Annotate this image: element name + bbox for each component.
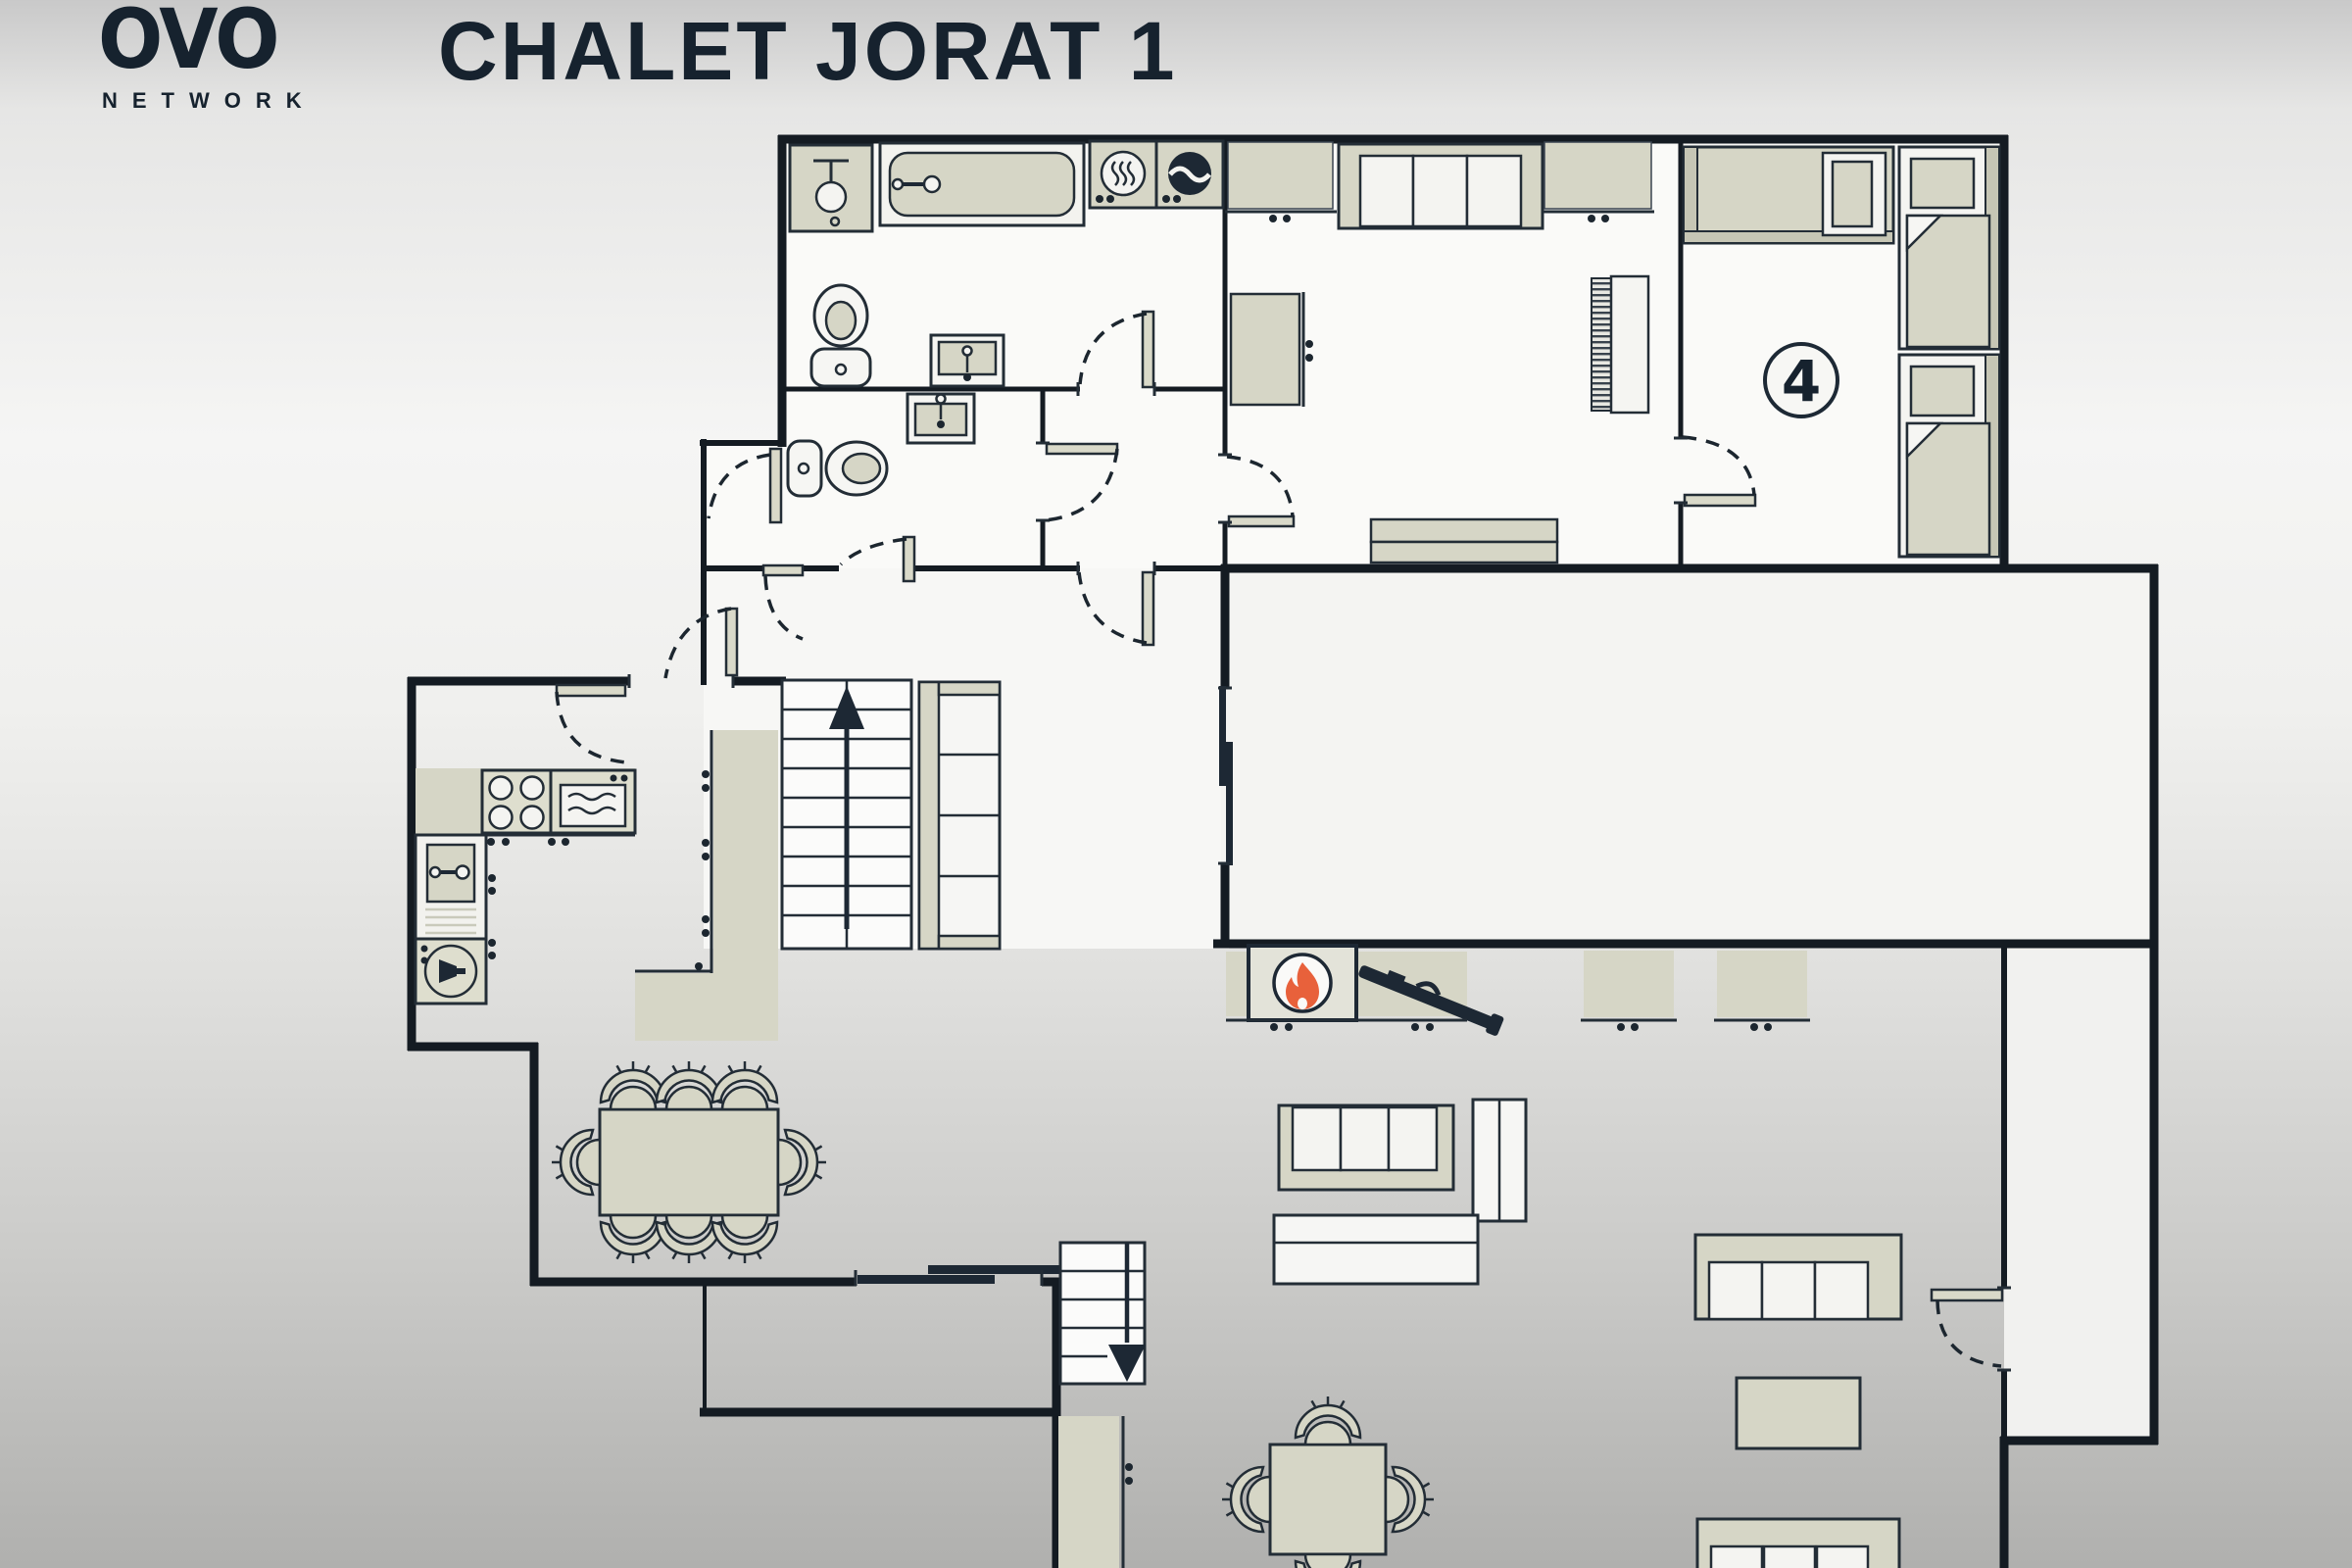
fireplace <box>1249 946 1356 1020</box>
dining-table <box>600 1109 778 1215</box>
bathroom-door-leaf <box>1143 312 1153 387</box>
sofa <box>1695 1235 1901 1319</box>
dining-area <box>552 1061 826 1263</box>
bedroom-door-leaf <box>1229 516 1294 526</box>
capacity-number: 4 <box>1782 348 1821 415</box>
hall-top-door-leaf <box>763 565 803 575</box>
coffee-table <box>1737 1378 1860 1448</box>
entry-landing-floor <box>2004 944 2154 1441</box>
dining-chair <box>712 1061 777 1109</box>
oven <box>551 770 635 833</box>
sink <box>931 335 1004 386</box>
wc-door-leaf <box>904 537 914 581</box>
breakfast-table <box>1222 1396 1434 1568</box>
living-door-leaf <box>1932 1290 2002 1300</box>
sideboard <box>1584 951 1674 1017</box>
radiator <box>1592 276 1648 413</box>
stair-hall <box>782 680 1000 949</box>
floorplan-drawing: 4 <box>0 0 2352 1568</box>
toilet <box>788 441 887 496</box>
bathtub-tap-icon <box>893 179 903 189</box>
sofa <box>1339 144 1543 228</box>
chair <box>1386 1467 1434 1532</box>
wc-corridor-door-leaf <box>1047 444 1117 454</box>
dining-chair <box>778 1130 826 1195</box>
hall-door-leaf <box>726 609 737 675</box>
bed-double <box>1684 147 1893 243</box>
open-void-floor <box>1221 564 2158 947</box>
chair <box>1222 1467 1270 1532</box>
dining-chair <box>552 1130 600 1195</box>
bed-single <box>1899 147 1999 349</box>
door-swing-arc <box>557 692 627 762</box>
sofa <box>1697 1519 1899 1568</box>
wardrobe <box>1544 142 1651 209</box>
kitchen <box>416 730 778 1041</box>
sink <box>907 394 974 443</box>
bench <box>1371 519 1557 563</box>
corridor-door-leaf <box>1143 572 1153 645</box>
bedroom4-door-leaf <box>1685 495 1755 506</box>
dining-chair <box>712 1215 777 1263</box>
floorplan-page: OVO NETWORK CHALET JORAT 1 <box>0 0 2352 1568</box>
window-icon <box>1226 742 1233 865</box>
sideboard <box>1717 951 1807 1017</box>
kitchen-sink <box>416 835 486 939</box>
dishwasher <box>416 939 486 1004</box>
staircase-down <box>1060 1243 1146 1384</box>
window-icon <box>1219 686 1226 786</box>
toilet <box>811 285 870 386</box>
sliding-door <box>857 1275 995 1284</box>
kitchen-door-leaf <box>557 685 625 696</box>
wardrobe <box>1058 1416 1133 1568</box>
wardrobe <box>1228 142 1333 209</box>
stove <box>482 770 551 833</box>
vestibule-door-leaf <box>770 449 781 522</box>
door-swing-arc <box>1937 1300 2001 1366</box>
staircase-up <box>782 680 911 949</box>
chair <box>1296 1554 1360 1568</box>
chair <box>1296 1396 1360 1445</box>
bookshelf <box>919 682 1000 949</box>
living-room <box>1058 946 1901 1568</box>
bed-single <box>1899 355 1999 557</box>
capacity-badge: 4 <box>1765 344 1837 416</box>
sofa <box>1279 1105 1453 1190</box>
